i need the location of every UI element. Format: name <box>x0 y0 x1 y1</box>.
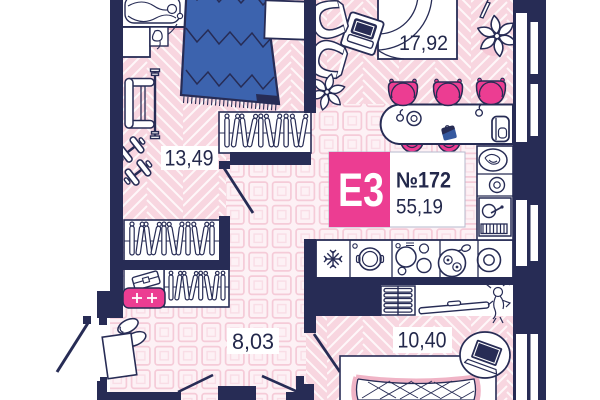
svg-text:10,40: 10,40 <box>398 328 447 353</box>
svg-text:№172: №172 <box>396 168 451 193</box>
svg-text:E3: E3 <box>338 163 384 216</box>
svg-text:8,03: 8,03 <box>232 329 274 354</box>
svg-text:55,19: 55,19 <box>396 195 443 219</box>
svg-text:13,49: 13,49 <box>165 146 214 171</box>
svg-text:17,92: 17,92 <box>399 31 448 55</box>
